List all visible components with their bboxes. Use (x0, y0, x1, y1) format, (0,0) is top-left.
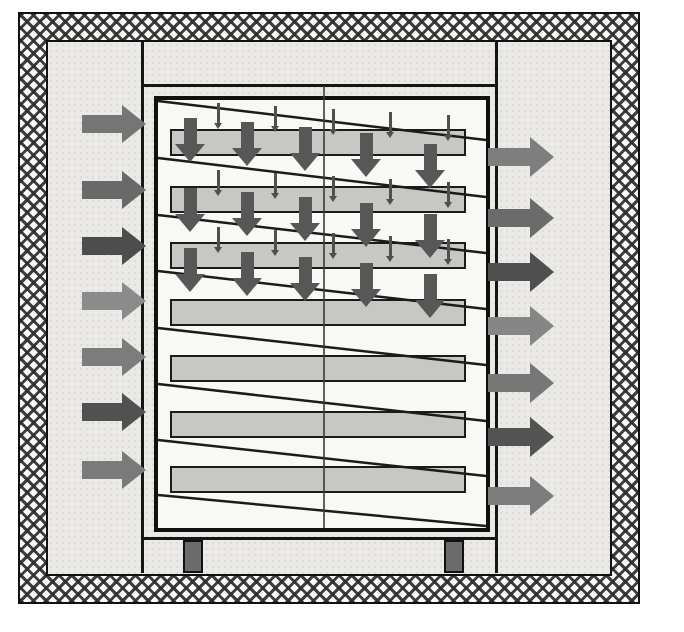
down-arrow (175, 188, 205, 232)
arrow-stem (274, 230, 277, 250)
inlet-air-arrow (82, 171, 146, 209)
arrow-head (175, 144, 205, 162)
arrow-body (82, 348, 122, 366)
arrow-head (329, 196, 337, 202)
down-arrow (175, 118, 205, 162)
arrow-stem (389, 112, 392, 132)
arrow-head (232, 218, 262, 236)
arrow-stem (217, 103, 220, 123)
arrow-head (214, 190, 222, 196)
arrow-body (488, 148, 530, 166)
down-arrow (415, 144, 445, 188)
cabinet-leg (444, 540, 464, 573)
arrow-head (530, 417, 554, 457)
arrow-head (415, 170, 445, 188)
arrow-body (82, 292, 122, 310)
arrow-body (424, 274, 437, 300)
down-arrow (351, 133, 381, 177)
arrow-head (175, 274, 205, 292)
down-arrow (415, 274, 445, 318)
down-arrow (290, 257, 320, 301)
arrow-body (360, 203, 373, 229)
arrow-head (214, 123, 222, 129)
down-arrow (290, 127, 320, 171)
arrow-head (530, 476, 554, 516)
arrow-head (122, 227, 146, 265)
arrow-head (122, 171, 146, 209)
arrow-head (329, 253, 337, 259)
outlet-air-arrow (488, 252, 554, 292)
down-arrow (415, 214, 445, 258)
arrow-body (82, 461, 122, 479)
small-down-arrow (386, 179, 395, 205)
arrow-head (351, 289, 381, 307)
arrow-body (241, 252, 254, 278)
inlet-air-arrow (82, 393, 146, 431)
arrow-head (530, 137, 554, 177)
small-down-arrow (214, 170, 223, 196)
down-arrow (232, 252, 262, 296)
inlet-air-arrow (82, 227, 146, 265)
arrow-stem (274, 106, 277, 126)
outlet-air-arrow (488, 137, 554, 177)
down-arrow (232, 122, 262, 166)
cabinet-leg (183, 540, 203, 573)
down-arrow (351, 263, 381, 307)
arrow-stem (332, 109, 335, 129)
inlet-air-arrow (82, 105, 146, 143)
inlet-air-arrow (82, 451, 146, 489)
down-arrow (232, 192, 262, 236)
outlet-air-arrow (488, 198, 554, 238)
arrow-head (444, 259, 452, 265)
arrow-head (290, 283, 320, 301)
arrow-head (530, 363, 554, 403)
arrow-body (488, 428, 530, 446)
arrow-stem (389, 179, 392, 199)
tray (170, 411, 466, 438)
arrow-body (488, 487, 530, 505)
arrow-body (82, 403, 122, 421)
arrow-stem (217, 227, 220, 247)
down-arrow (351, 203, 381, 247)
arrow-body (360, 133, 373, 159)
arrow-body (241, 192, 254, 218)
arrow-head (530, 198, 554, 238)
arrow-body (488, 263, 530, 281)
arrow-head (232, 278, 262, 296)
small-down-arrow (329, 176, 338, 202)
arrow-head (122, 393, 146, 431)
small-down-arrow (386, 236, 395, 262)
arrow-head (290, 153, 320, 171)
arrow-body (488, 317, 530, 335)
inlet-air-arrow (82, 282, 146, 320)
arrow-head (351, 229, 381, 247)
arrow-stem (274, 173, 277, 193)
small-down-arrow (271, 230, 280, 256)
arrow-body (184, 248, 197, 274)
small-down-arrow (214, 227, 223, 253)
small-down-arrow (329, 233, 338, 259)
arrow-body (241, 122, 254, 148)
small-down-arrow (329, 109, 338, 135)
arrow-head (122, 282, 146, 320)
inlet-air-arrow (82, 338, 146, 376)
arrow-head (271, 193, 279, 199)
arrow-body (184, 188, 197, 214)
arrow-head (122, 105, 146, 143)
arrow-stem (447, 239, 450, 259)
arrow-head (351, 159, 381, 177)
outlet-air-arrow (488, 363, 554, 403)
small-down-arrow (386, 112, 395, 138)
arrow-head (271, 126, 279, 132)
down-arrow (175, 248, 205, 292)
arrow-body (488, 374, 530, 392)
arrow-head (214, 247, 222, 253)
arrow-head (386, 132, 394, 138)
arrow-head (122, 338, 146, 376)
arrow-body (360, 263, 373, 289)
arrow-head (444, 202, 452, 208)
arrow-stem (332, 233, 335, 253)
arrow-head (415, 300, 445, 318)
small-down-arrow (271, 106, 280, 132)
arrow-head (386, 256, 394, 262)
outlet-air-arrow (488, 417, 554, 457)
arrow-stem (217, 170, 220, 190)
arrow-body (299, 257, 312, 283)
arrow-stem (447, 182, 450, 202)
arrow-body (184, 118, 197, 144)
arrow-head (444, 135, 452, 141)
arrow-head (386, 199, 394, 205)
arrow-head (530, 306, 554, 346)
arrow-body (82, 115, 122, 133)
outlet-air-arrow (488, 476, 554, 516)
arrow-body (424, 214, 437, 240)
arrow-head (415, 240, 445, 258)
arrow-head (122, 451, 146, 489)
chamber-top-plate (141, 84, 498, 87)
small-down-arrow (214, 103, 223, 129)
tray (170, 466, 466, 493)
arrow-head (530, 252, 554, 292)
arrow-head (232, 148, 262, 166)
tray (170, 355, 466, 382)
arrow-body (299, 127, 312, 153)
outlet-air-arrow (488, 306, 554, 346)
tray-dryer-diagram (0, 0, 684, 632)
arrow-body (488, 209, 530, 227)
arrow-stem (332, 176, 335, 196)
arrow-body (424, 144, 437, 170)
down-arrow (290, 197, 320, 241)
small-down-arrow (444, 115, 453, 141)
small-down-arrow (271, 173, 280, 199)
arrow-head (329, 129, 337, 135)
arrow-stem (447, 115, 450, 135)
arrow-head (290, 223, 320, 241)
arrow-head (271, 250, 279, 256)
arrow-body (82, 237, 122, 255)
arrow-body (82, 181, 122, 199)
arrow-body (299, 197, 312, 223)
arrow-head (175, 214, 205, 232)
arrow-stem (389, 236, 392, 256)
